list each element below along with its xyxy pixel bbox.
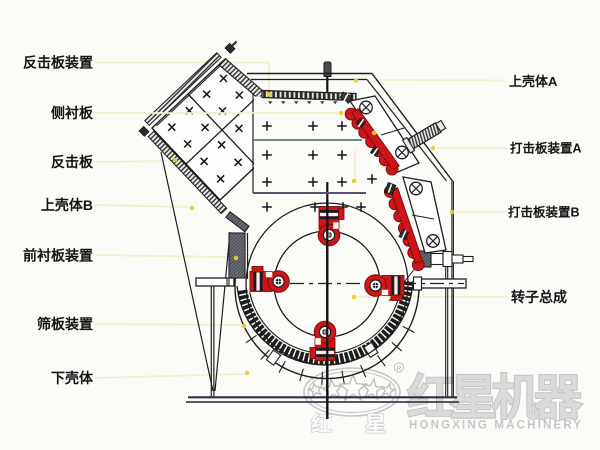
svg-text:上壳体A: 上壳体A bbox=[509, 74, 558, 89]
svg-text:前衬板装置: 前衬板装置 bbox=[23, 248, 93, 264]
svg-text:红星机器: 红星机器 bbox=[407, 372, 583, 425]
svg-text:星: 星 bbox=[365, 413, 386, 436]
svg-text:上壳体B: 上壳体B bbox=[41, 197, 93, 213]
svg-text:筛板装置: 筛板装置 bbox=[37, 316, 93, 332]
svg-text:HONGXING MACHINERY: HONGXING MACHINERY bbox=[409, 420, 581, 432]
svg-text:R: R bbox=[397, 365, 402, 372]
svg-text:打击板装置A: 打击板装置A bbox=[510, 141, 582, 156]
svg-text:转子总成: 转子总成 bbox=[511, 289, 567, 305]
svg-text:下壳体: 下壳体 bbox=[51, 370, 94, 386]
svg-text:打击板装置B: 打击板装置B bbox=[508, 205, 580, 220]
svg-text:侧衬板: 侧衬板 bbox=[51, 105, 94, 121]
svg-text:反击板装置: 反击板装置 bbox=[23, 55, 93, 71]
svg-text:反击板: 反击板 bbox=[51, 154, 94, 170]
svg-text:红: 红 bbox=[311, 412, 332, 436]
